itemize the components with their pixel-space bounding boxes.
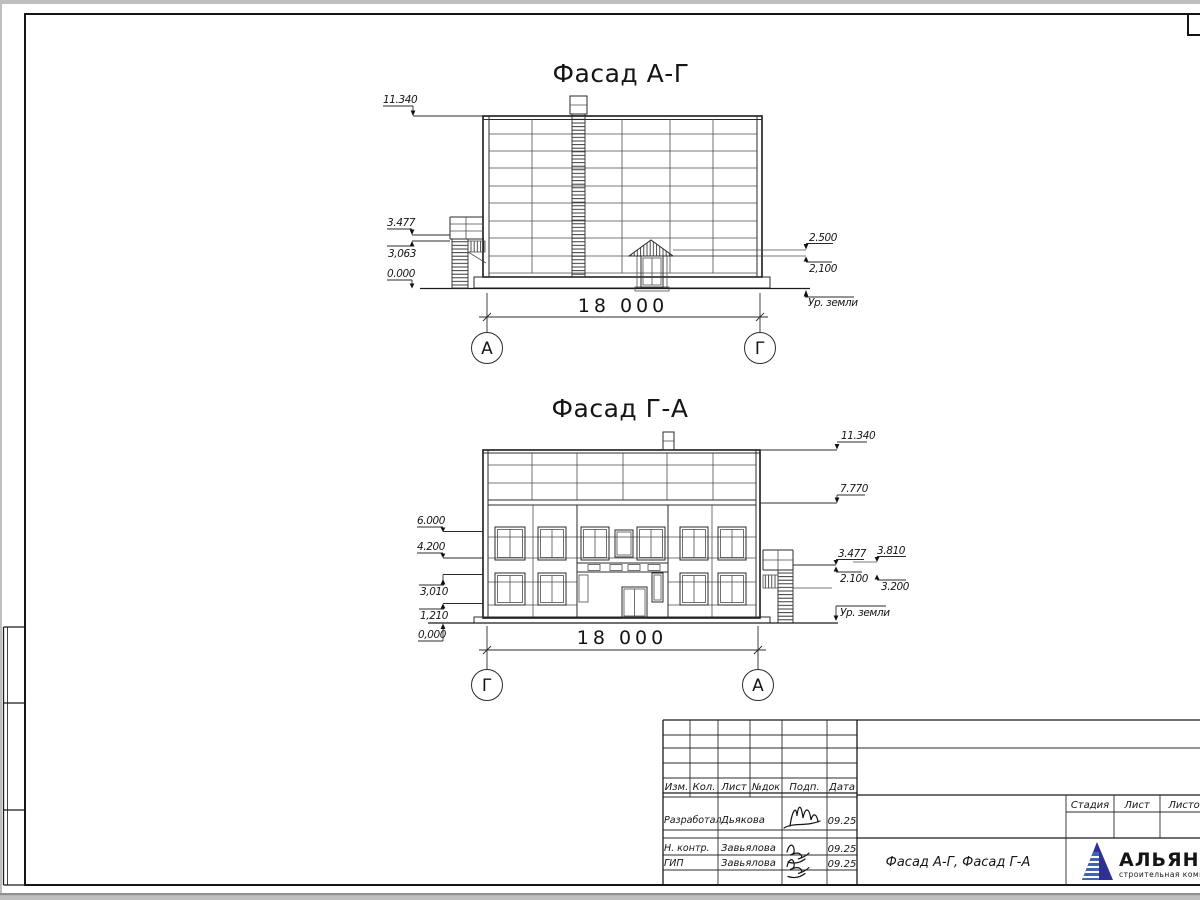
level-mark: 11.340 — [841, 430, 876, 442]
level-mark: 3.810 — [877, 545, 906, 557]
stage-label: Стадия — [1071, 800, 1109, 811]
level-mark: 0,000 — [418, 629, 447, 641]
ground-level-label: Ур. земли — [840, 607, 890, 619]
stage-header: Стадия Лист Листов — [1071, 800, 1200, 811]
col-list: Лист — [720, 782, 748, 793]
paper — [2, 4, 1200, 893]
axis-letter: А — [481, 339, 493, 359]
sheet-label: Лист — [1123, 800, 1151, 811]
col-kol: Кол. — [693, 782, 716, 793]
facade-ga-title: Фасад Г-А — [551, 394, 688, 423]
width-dimension: 18 000 — [577, 627, 667, 649]
level-mark: 3,010 — [420, 586, 449, 598]
sheets-label: Листов — [1167, 800, 1200, 811]
level-mark: 3,063 — [388, 248, 416, 260]
date: 09.25 — [828, 816, 857, 827]
level-mark: 3.477 — [387, 217, 416, 229]
level-mark: 2.500 — [809, 232, 838, 244]
axis-letter: А — [752, 676, 764, 696]
role-label: Разработал — [664, 815, 722, 826]
level-mark: 0.000 — [387, 268, 416, 280]
date: 09.25 — [828, 859, 857, 870]
drawing-sheet: Фасад А-Г — [0, 0, 1200, 900]
level-mark: 4.200 — [417, 541, 446, 553]
level-mark: 1,210 — [420, 610, 449, 622]
person-name: Дьякова — [720, 815, 765, 826]
role-label: Н. контр. — [664, 843, 710, 854]
facade-ag-title: Фасад А-Г — [552, 59, 689, 88]
person-name: Завьялова — [721, 858, 776, 869]
col-podp: Подп. — [789, 782, 819, 793]
axis-letter: Г — [755, 339, 765, 359]
col-izm: Изм. — [665, 782, 689, 793]
person-name: Завьялова — [721, 843, 776, 854]
col-ndok: №док — [751, 782, 780, 793]
col-data: Дата — [828, 782, 855, 793]
chimney-ladder — [570, 96, 587, 277]
axis-letter: Г — [482, 676, 492, 696]
cad-canvas: Фасад А-Г — [0, 0, 1200, 900]
date: 09.25 — [828, 844, 857, 855]
logo-name: АЛЬЯНС — [1119, 849, 1200, 871]
level-mark: 7.770 — [840, 483, 869, 495]
level-mark: 3.477 — [838, 548, 867, 560]
sheet-title: Фасад А-Г, Фасад Г-А — [886, 855, 1031, 870]
level-mark: 11.340 — [383, 94, 418, 106]
level-mark: 2,100 — [809, 263, 838, 275]
ground-level-label: Ур. земли — [808, 297, 858, 309]
logo-subtitle: строительная компания — [1119, 870, 1200, 879]
level-mark: 3.200 — [881, 581, 910, 593]
role-label: ГИП — [664, 858, 684, 869]
width-dimension: 18 000 — [578, 295, 668, 317]
level-mark: 6.000 — [417, 515, 446, 527]
level-mark: 2.100 — [840, 573, 869, 585]
paper-bottom-edge — [0, 893, 1200, 895]
